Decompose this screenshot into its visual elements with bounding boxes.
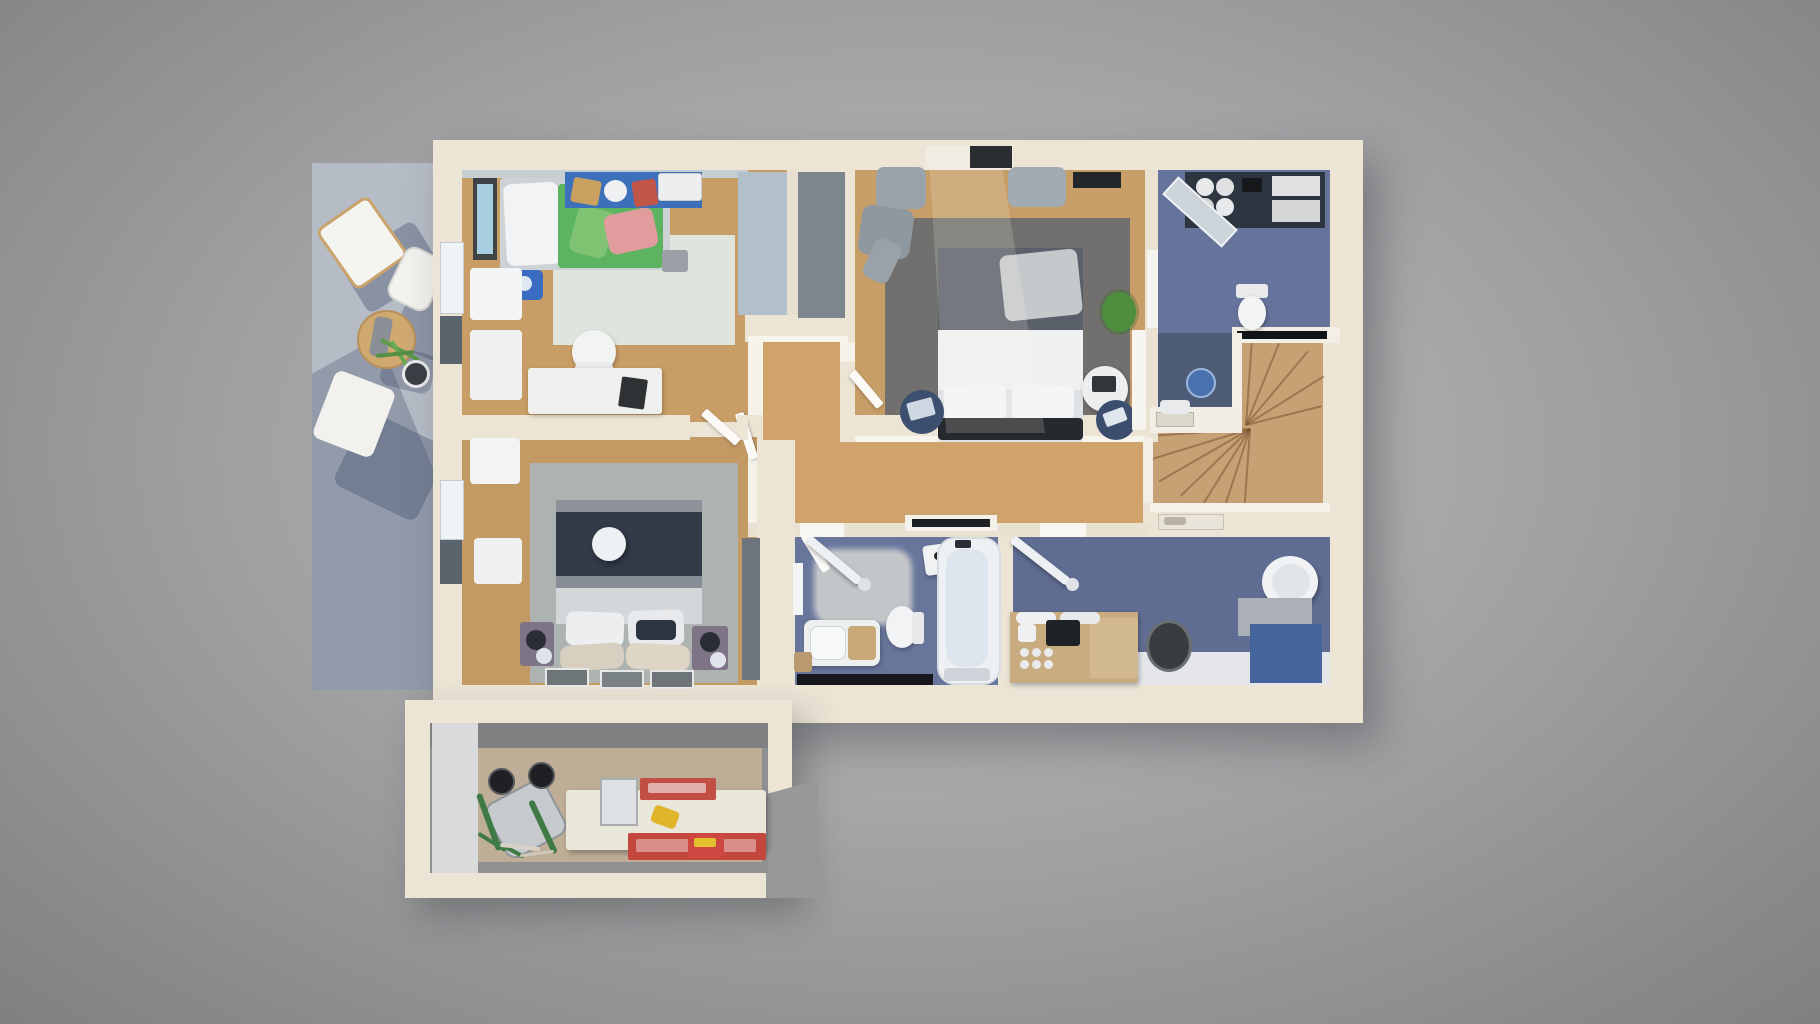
bedroom2-ball-lamp	[592, 527, 626, 561]
bedroom2-wardrobe	[742, 538, 760, 680]
bathR-knob-2	[1032, 648, 1041, 657]
master-door-east-white	[1132, 330, 1146, 430]
plant-pot	[402, 360, 430, 388]
bedroom2-cd-right	[710, 652, 726, 668]
bathL-wall-mirror	[793, 563, 803, 615]
pegboard-tools	[648, 783, 706, 793]
wheelbarrow-wheel-left	[488, 768, 515, 795]
bathR-door-sill	[1040, 523, 1086, 537]
workbench-screen-panel	[600, 778, 638, 826]
kids-laptop	[618, 376, 648, 409]
kids-wardrobe	[738, 172, 787, 315]
bathR-bottles	[1018, 624, 1036, 642]
wall-stairs-west-stringer	[1143, 437, 1153, 503]
bathL-basin	[810, 626, 846, 660]
bedroom2-floor-frame-3	[650, 670, 694, 689]
toy-propeller	[604, 180, 627, 202]
bathR-basket	[1146, 620, 1192, 672]
toy-wooden-car	[570, 177, 602, 206]
toy-crane-red	[631, 178, 658, 207]
bathR-knob-6	[1044, 660, 1053, 669]
bathL-wood-box	[794, 652, 812, 672]
master-wardrobe	[798, 172, 845, 318]
bathTR-door-white	[1147, 250, 1158, 328]
bathR-toilet-seat	[1272, 564, 1310, 600]
bathTR-linen-stack-1	[1272, 176, 1320, 196]
bathR-knob-5	[1032, 660, 1041, 669]
stair-ledge-items	[1156, 412, 1194, 427]
bathTR-jar-dark	[1242, 178, 1262, 192]
understair-bottles	[1164, 517, 1186, 525]
wall-kids-master	[787, 170, 798, 317]
bathTR-towel-2	[1216, 178, 1234, 196]
stair-handrail-dark	[1237, 331, 1327, 339]
bedroom2-speaker-left	[526, 630, 546, 650]
toy-truck-cab-yellow	[694, 838, 716, 847]
tub-niche-slot	[912, 519, 990, 527]
bathTR-toilet-bowl	[1238, 296, 1266, 330]
showerTR-stool-blue	[1186, 368, 1216, 398]
hallway-floor	[763, 442, 1143, 523]
wall-corridor-top-edge	[748, 336, 848, 342]
wall-stairs-south-edge	[1150, 503, 1330, 512]
master-curtain-left	[876, 167, 926, 209]
skylight-frame-master	[970, 146, 1012, 168]
bathR-machine-dark	[1046, 620, 1080, 646]
wall-corridor-right-upper	[840, 342, 855, 362]
garage-wallface-top	[430, 723, 768, 748]
kids-picture-art	[477, 184, 493, 254]
bathR-shower-head	[1066, 578, 1079, 591]
bathtub-faucet	[955, 540, 971, 548]
bedroom2-floor-frame-1	[545, 668, 589, 687]
garage-wall-3d-edge	[766, 780, 818, 898]
wall-bedroom2-bathL	[757, 440, 795, 685]
bedroom2-duvet-navy	[556, 512, 702, 578]
bathtub-inner	[946, 549, 988, 667]
laundry-box-blue	[1250, 624, 1322, 683]
bedroom2-curtain-roll-lower	[474, 538, 522, 584]
showerTR-bottles	[1160, 400, 1190, 414]
wheelbarrow-wheel-right	[528, 762, 555, 789]
window-kids-upper	[440, 242, 464, 314]
garage-roller-door	[432, 723, 478, 873]
floor-plan-scene	[0, 0, 1820, 1024]
master-wall-vent	[1073, 172, 1121, 188]
kids-curtain-roll-upper	[470, 268, 522, 320]
toy-typewriter	[658, 173, 702, 201]
window-bedroom2-glass	[440, 480, 464, 540]
threshold-dark-bathL	[797, 674, 933, 685]
wall-bedroom2-top-west	[433, 415, 690, 440]
master-curtain-right	[1008, 167, 1066, 207]
bathL-bathmat	[944, 668, 990, 681]
bathR-knob-4	[1020, 660, 1029, 669]
bathTR-towel-1	[1196, 178, 1214, 196]
bathR-knob-1	[1020, 648, 1029, 657]
kids-curtain-roll-lower	[470, 330, 522, 400]
bathL-wood-tray	[848, 626, 876, 660]
bedroom2-floor-frame-2	[600, 670, 644, 689]
bedroom2-cd-left	[536, 648, 552, 664]
bathR-vanity-light-section	[1090, 618, 1138, 678]
master-plant	[1102, 292, 1136, 332]
bedroom2-cushion-right	[625, 642, 690, 671]
window-kids-lower	[440, 316, 462, 364]
bathR-knob-3	[1044, 648, 1053, 657]
bedroom2-curtain-roll-upper	[470, 438, 520, 484]
window-bedroom2-dark	[440, 540, 462, 584]
bedroom2-speaker-right	[700, 632, 720, 652]
kids-bed-pillow	[503, 182, 562, 267]
master-nightstand-right-book	[1092, 376, 1116, 392]
bathL-shower-head	[858, 578, 871, 591]
bedroom2-pillow-navy-inner	[636, 620, 676, 640]
kids-nightstand-gray	[662, 250, 688, 272]
bathL-toilet-tank	[912, 612, 924, 644]
wall-corridor-left	[748, 342, 763, 415]
bathTR-linen-stack-2	[1272, 200, 1320, 222]
